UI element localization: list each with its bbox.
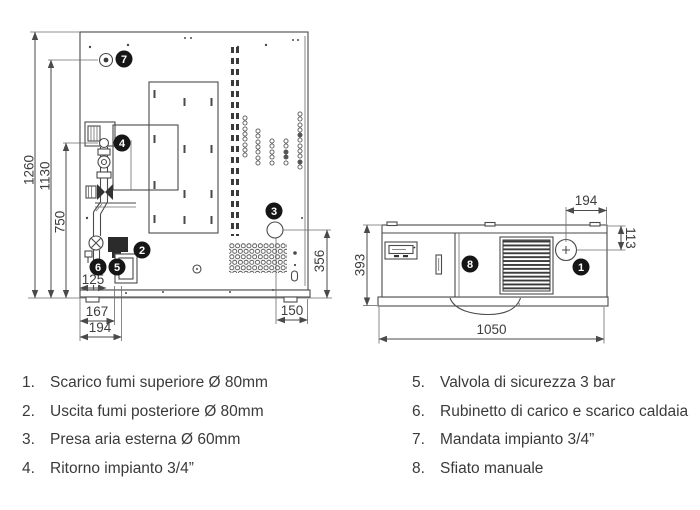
- callout-top-flue: 1: [573, 259, 590, 276]
- legend-item-label: Presa aria esterna Ø 60mm: [50, 430, 240, 449]
- callout-return: 4: [114, 135, 131, 152]
- foot-right: [284, 297, 297, 302]
- svg-text:8: 8: [467, 259, 473, 271]
- svg-text:5: 5: [114, 262, 120, 274]
- legend-item-label: Ritorno impianto 3/4”: [50, 459, 194, 478]
- dim-supply-height: 1130: [38, 161, 53, 190]
- dim-total-height: 1260: [22, 155, 37, 185]
- dim-depth: 393: [353, 254, 368, 277]
- legend-item-label: Valvola di sicurezza 3 bar: [440, 373, 615, 392]
- legend-item-label: Mandata impianto 3/4”: [440, 430, 594, 449]
- svg-text:6: 6: [95, 262, 101, 274]
- legend-item: 4. Ritorno impianto 3/4”: [22, 459, 362, 478]
- base-plate: [378, 297, 608, 306]
- top-grille: [500, 237, 553, 294]
- callout-manual-vent: 8: [462, 256, 479, 273]
- legend-item: 8. Sfiato manuale: [412, 459, 697, 478]
- legend-item-number: 2.: [22, 402, 50, 421]
- hinge-tab: [590, 223, 600, 227]
- legend-item: 1. Scarico fumi superiore Ø 80mm: [22, 373, 362, 392]
- hinge-tab: [485, 223, 495, 227]
- legend-item: 2. Uscita fumi posteriore Ø 80mm: [22, 402, 362, 421]
- hinge-tab: [387, 222, 397, 226]
- legend-item-number: 5.: [412, 373, 440, 392]
- svg-text:7: 7: [121, 54, 127, 66]
- legend-item-number: 4.: [22, 459, 50, 478]
- safety-valve-body: [108, 237, 128, 252]
- legend-left-column: 1. Scarico fumi superiore Ø 80mm 2. Usci…: [22, 373, 362, 487]
- legend-item-label: Sfiato manuale: [440, 459, 543, 478]
- legend-item-label: Uscita fumi posteriore Ø 80mm: [50, 402, 264, 421]
- air-intake-port: [267, 222, 283, 238]
- control-panel: [385, 242, 417, 259]
- svg-text:1: 1: [578, 262, 584, 274]
- dim-flue-offset-right: 194: [575, 193, 598, 208]
- return-port: [100, 139, 109, 148]
- callout-air-intake: 3: [266, 203, 283, 220]
- callout-safety-valve: 5: [109, 259, 126, 276]
- dim-flue-offset-x: 167: [86, 304, 109, 319]
- technical-drawing-page: 1260 1130 750 125 167 194 356 150: [0, 0, 700, 510]
- perforated-grid: [229, 243, 287, 273]
- legend-item: 5. Valvola di sicurezza 3 bar: [412, 373, 697, 392]
- legend-item: 6. Rubinetto di carico e scarico caldaia: [412, 402, 697, 421]
- legend-item-label: Scarico fumi superiore Ø 80mm: [50, 373, 268, 392]
- callout-rear-flue: 2: [134, 242, 151, 259]
- legend-right-column: 5. Valvola di sicurezza 3 bar 6. Rubinet…: [412, 373, 697, 487]
- legend-item-number: 6.: [412, 402, 440, 421]
- svg-text:3: 3: [271, 206, 277, 218]
- dim-flue-offset-front: 113: [623, 227, 638, 249]
- dim-return-height: 750: [53, 211, 68, 234]
- legend-item-number: 8.: [412, 459, 440, 478]
- legend-item-number: 1.: [22, 373, 50, 392]
- svg-text:2: 2: [139, 245, 145, 257]
- callout-drain: 6: [90, 259, 107, 276]
- svg-text:4: 4: [119, 138, 126, 150]
- dim-width: 1050: [476, 322, 506, 337]
- rear-view-diagram: 1260 1130 750 125 167 194 356 150: [0, 0, 350, 362]
- foot-left: [86, 297, 99, 302]
- top-view-diagram: 393 194 113 1050 8 1: [350, 185, 700, 355]
- callout-supply: 7: [116, 51, 133, 68]
- legend-item: 7. Mandata impianto 3/4”: [412, 430, 697, 449]
- legend-item-number: 3.: [22, 430, 50, 449]
- dim-pipe-offset-x: 194: [89, 320, 112, 335]
- dim-air-intake-height: 356: [312, 250, 327, 273]
- legend-item: 3. Presa aria esterna Ø 60mm: [22, 430, 362, 449]
- legend-item-number: 7.: [412, 430, 440, 449]
- dim-air-intake-offset-x: 150: [281, 303, 304, 318]
- legend-item-label: Rubinetto di carico e scarico caldaia: [440, 402, 688, 421]
